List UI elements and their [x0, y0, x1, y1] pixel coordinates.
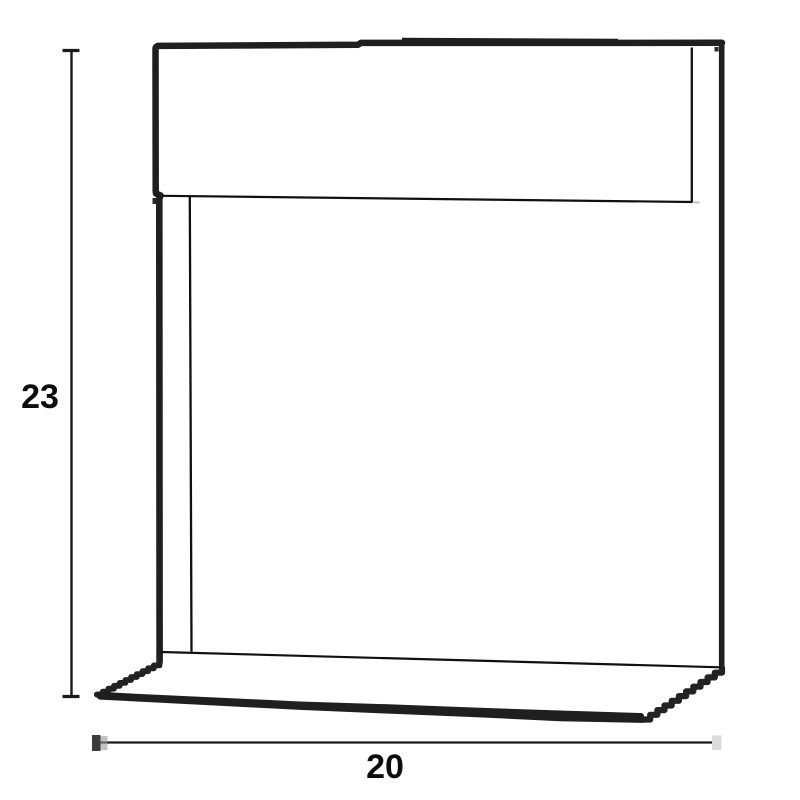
- svg-text:23: 23: [21, 378, 59, 416]
- svg-text:20: 20: [366, 748, 404, 786]
